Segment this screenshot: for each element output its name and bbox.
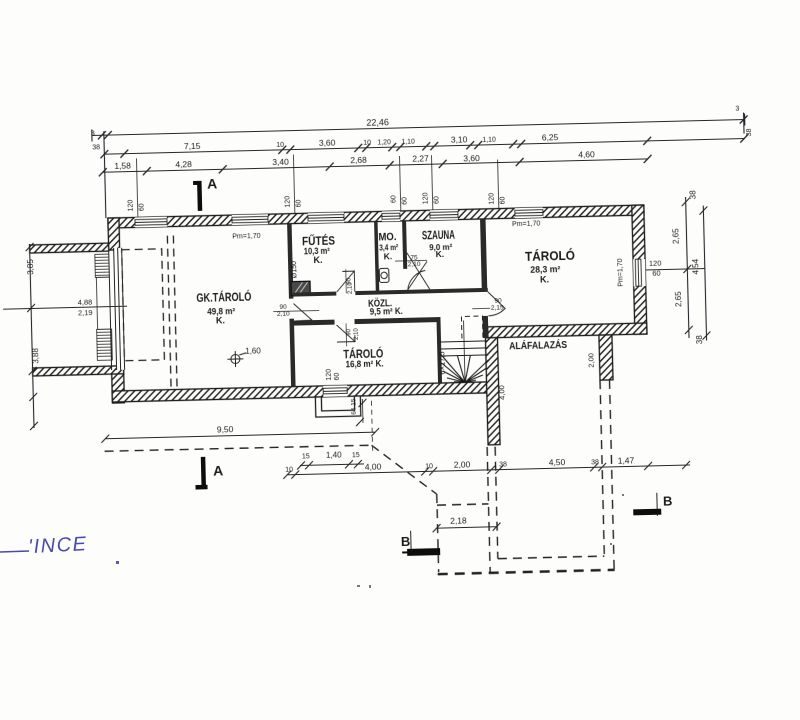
svg-text:SZAUNA: SZAUNA <box>422 230 455 243</box>
svg-text:3,10: 3,10 <box>451 134 468 144</box>
svg-text:3,85: 3,85 <box>26 259 35 275</box>
svg-text:K.: K. <box>384 251 393 261</box>
svg-text:60: 60 <box>652 269 661 278</box>
svg-text:7,15: 7,15 <box>184 141 201 151</box>
svg-text:1,20: 1,20 <box>377 139 391 146</box>
svg-text:15: 15 <box>302 453 310 460</box>
svg-text:ALÁFALAZÁS: ALÁFALAZÁS <box>509 338 568 352</box>
svg-text:22,46: 22,46 <box>366 117 389 128</box>
svg-text:120: 120 <box>127 200 134 212</box>
svg-text:120: 120 <box>284 196 291 208</box>
svg-text:3: 3 <box>91 130 95 137</box>
svg-text:B: B <box>663 493 673 508</box>
svg-text:16,8 m² K.: 16,8 m² K. <box>345 358 383 369</box>
svg-text:9,50: 9,50 <box>217 424 234 434</box>
svg-text:4,28: 4,28 <box>175 159 192 169</box>
svg-text:4,88: 4,88 <box>78 298 93 307</box>
svg-text:120: 120 <box>326 369 333 381</box>
svg-text:120: 120 <box>488 193 495 205</box>
svg-text:60: 60 <box>296 199 303 207</box>
svg-text:4,50: 4,50 <box>549 457 566 467</box>
svg-text:2,10: 2,10 <box>348 282 354 294</box>
svg-text:2,00: 2,00 <box>586 353 595 368</box>
svg-text:4,60: 4,60 <box>578 149 595 159</box>
svg-text:2,65: 2,65 <box>674 291 683 307</box>
svg-text:K.: K. <box>540 274 549 284</box>
svg-text:38: 38 <box>688 190 697 200</box>
svg-text:Pm=1,70: Pm=1,70 <box>617 258 625 286</box>
svg-text:1,40: 1,40 <box>326 450 342 459</box>
svg-text:3,60: 3,60 <box>319 138 336 148</box>
svg-text:60: 60 <box>334 372 341 380</box>
svg-text:A: A <box>213 462 224 478</box>
svg-text:60: 60 <box>390 195 397 203</box>
svg-text:90: 90 <box>346 328 352 335</box>
svg-text:2,10: 2,10 <box>354 327 360 339</box>
svg-text:38: 38 <box>499 461 507 468</box>
svg-text:4,54: 4,54 <box>691 258 700 274</box>
svg-text:15: 15 <box>350 398 357 406</box>
svg-text:10: 10 <box>285 467 293 474</box>
svg-text:2,10: 2,10 <box>408 261 421 268</box>
svg-text:A: A <box>207 175 218 191</box>
svg-text:K.: K. <box>216 315 225 325</box>
svg-text:3,40: 3,40 <box>272 157 289 167</box>
svg-text:38: 38 <box>92 144 100 151</box>
svg-text:3: 3 <box>735 106 739 113</box>
svg-text:1,10: 1,10 <box>401 139 415 146</box>
svg-text:9,5 m² K.: 9,5 m² K. <box>370 306 403 317</box>
svg-text:38: 38 <box>746 128 753 136</box>
svg-text:10: 10 <box>425 463 433 470</box>
svg-text:K.: K. <box>313 255 322 265</box>
svg-text:1,58: 1,58 <box>114 161 131 171</box>
svg-text:Ø150: Ø150 <box>291 261 298 278</box>
svg-text:Pm=1,70: Pm=1,70 <box>232 233 260 241</box>
svg-text:10: 10 <box>276 142 284 149</box>
svg-text:120: 120 <box>649 259 662 268</box>
svg-text:2,00: 2,00 <box>454 459 471 469</box>
svg-text:3,60: 3,60 <box>463 153 480 163</box>
svg-text:3,88: 3,88 <box>31 347 40 363</box>
svg-text:60: 60 <box>401 197 408 205</box>
svg-text:38: 38 <box>695 335 704 345</box>
svg-text:2,27: 2,27 <box>412 153 429 163</box>
svg-text:60: 60 <box>433 196 440 204</box>
svg-text:1,47: 1,47 <box>618 455 635 465</box>
svg-text:GK.TÁROLÓ: GK.TÁROLÓ <box>196 291 251 305</box>
svg-text:6,25: 6,25 <box>542 132 559 142</box>
svg-text:B: B <box>401 534 411 549</box>
svg-text:1,60: 1,60 <box>245 346 261 355</box>
svg-text:15: 15 <box>352 452 360 459</box>
svg-text:K.: K. <box>436 249 445 259</box>
svg-text:120: 120 <box>422 192 429 204</box>
svg-text:'INCE: 'INCE <box>28 533 88 558</box>
svg-text:4,00: 4,00 <box>497 385 506 400</box>
svg-text:1,10: 1,10 <box>482 137 496 144</box>
svg-text:2,65: 2,65 <box>671 228 680 244</box>
svg-text:2,15: 2,15 <box>491 304 504 311</box>
svg-text:10: 10 <box>363 140 371 147</box>
svg-text:64: 64 <box>351 407 358 415</box>
svg-text:Pm=1,70: Pm=1,70 <box>512 221 540 229</box>
svg-text:6×17,5: 6×17,5 <box>437 351 447 374</box>
svg-text:60: 60 <box>139 203 146 211</box>
svg-text:2,18: 2,18 <box>450 515 467 525</box>
svg-text:2,68: 2,68 <box>350 155 367 165</box>
svg-text:2,19: 2,19 <box>78 308 93 317</box>
svg-text:4,00: 4,00 <box>365 462 382 472</box>
svg-text:28,3 m²: 28,3 m² <box>530 264 560 275</box>
svg-text:38: 38 <box>591 459 599 466</box>
svg-text:TÁROLÓ: TÁROLÓ <box>525 248 576 264</box>
svg-text:60: 60 <box>500 196 507 204</box>
